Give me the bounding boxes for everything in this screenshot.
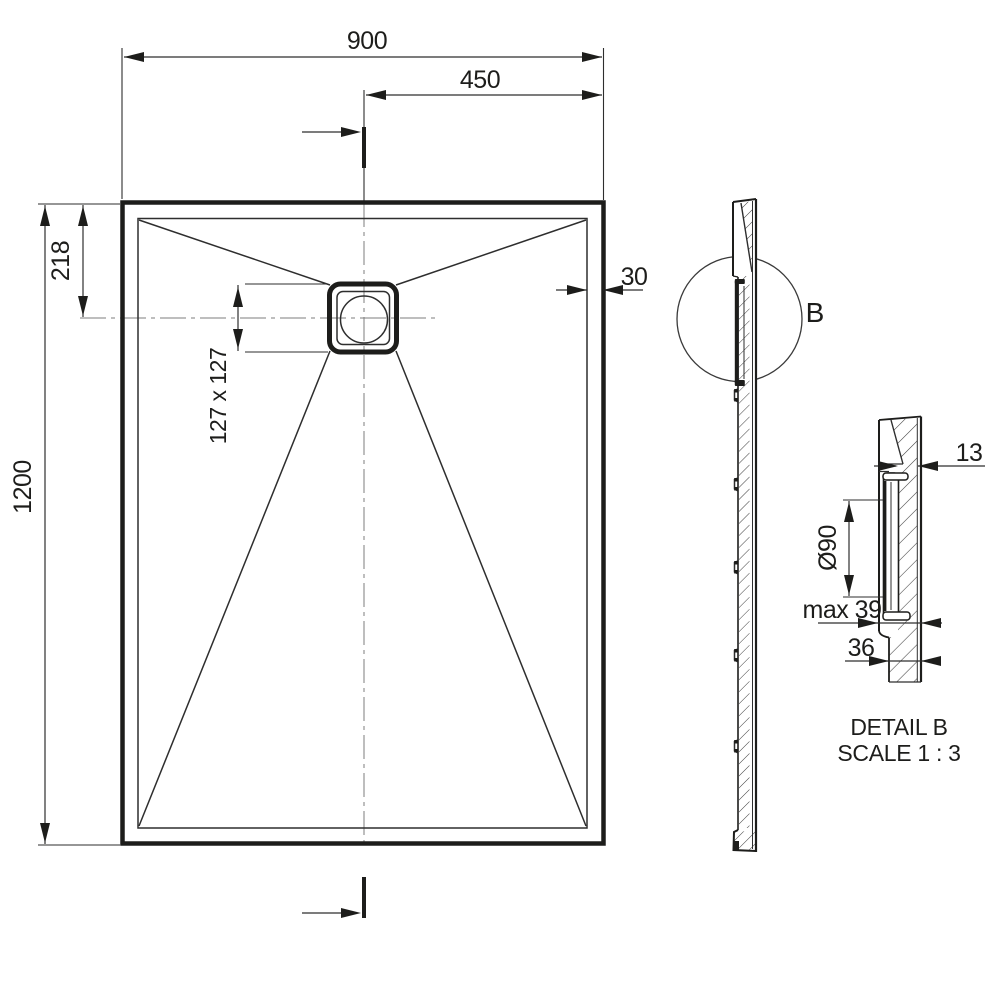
dim-36-label: 36 bbox=[848, 634, 875, 662]
dim-max39-label: max 39 bbox=[803, 596, 882, 624]
dim-450-label: 450 bbox=[460, 66, 500, 94]
dim-900-label: 900 bbox=[347, 27, 387, 55]
dimension-total-width: 900 bbox=[122, 27, 604, 200]
dimension-drain-offset: 218 bbox=[38, 204, 120, 317]
dim-d90-label: Ø90 bbox=[814, 525, 842, 571]
detail-title-block: DETAIL B SCALE 1 : 3 bbox=[837, 714, 960, 766]
dimension-total-height: 1200 bbox=[9, 205, 120, 845]
section-markers bbox=[302, 127, 364, 918]
dim-drain-size-label: 127 x 127 bbox=[205, 348, 231, 445]
dim-1200-label: 1200 bbox=[9, 460, 37, 514]
dim-30-label: 30 bbox=[621, 263, 648, 291]
detail-circle-label: B bbox=[806, 297, 825, 328]
tray-outline bbox=[123, 203, 604, 844]
detail-title: DETAIL B bbox=[850, 714, 947, 740]
dimension-drain-size: 127 x 127 bbox=[205, 284, 328, 444]
dim-218-label: 218 bbox=[47, 241, 75, 281]
technical-drawing: 900 450 218 1200 bbox=[0, 0, 1000, 1000]
drawing-page: 900 450 218 1200 bbox=[0, 0, 1000, 1000]
detail-view: 13 Ø90 max 39 36 DETAIL B SCA bbox=[803, 417, 985, 767]
dimension-center-offset: 450 bbox=[366, 66, 602, 100]
detail-scale: SCALE 1 : 3 bbox=[837, 740, 960, 766]
dimension-drain-diameter: Ø90 bbox=[814, 500, 883, 597]
front-view: 900 450 218 1200 bbox=[9, 27, 647, 918]
dim-13-label: 13 bbox=[956, 439, 983, 467]
side-view: B bbox=[677, 199, 824, 852]
